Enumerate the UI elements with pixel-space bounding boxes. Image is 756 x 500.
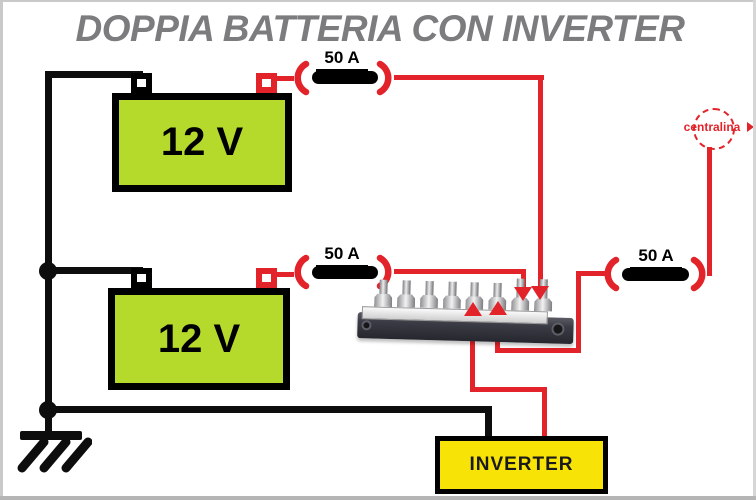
arrow-down-icon [514,287,532,301]
wire-inverter-positive-drop [542,387,547,438]
inverter-label: INVERTER [469,454,573,476]
wire-negative-bus-left [45,71,52,413]
fuse2-left-arc-icon [288,254,310,290]
fuse1-right-arc-icon [376,60,398,96]
fuse3-right-arc-icon [690,256,712,292]
inverter-box: INVERTER [435,436,608,494]
earth-ground-icon [8,426,92,478]
busbar-terminal [420,281,439,308]
battery-1-label: 12 V [161,120,243,165]
fuse1-left-arc-icon [288,60,310,96]
battery-2-label: 12 V [158,317,240,362]
wire-battery1-negative-top [45,71,143,78]
wire-inverter-negative-drop [485,406,492,439]
battery2-negative-terminal [131,268,152,288]
fuse1-label: 50 A [316,48,368,72]
junction-dot [39,401,57,419]
wire-fuse1-to-busbar-horizontal [394,75,544,80]
arrow-up-icon [464,302,482,316]
arrow-down-icon [531,286,549,300]
page-title: DOPPIA BATTERIA CON INVERTER [30,8,730,50]
image-edge [0,0,3,500]
wire-battery2-negative-branch [45,267,143,274]
battery-1: 12 V [112,93,292,192]
wire-to-inverter-horizontal [470,387,547,392]
battery-2: 12 V [108,288,290,390]
wire-fuse1-to-busbar-vertical [538,75,543,288]
fuse3-left-arc-icon [598,256,620,292]
busbar-terminal [443,281,462,308]
wiring-diagram: DOPPIA BATTERIA CON INVERTER 12 V 12 V 5… [0,0,756,500]
arrow-up-icon [489,301,507,315]
fuse2-label: 50 A [316,244,368,268]
busbar-terminal [374,280,393,307]
image-edge [0,496,756,500]
busbar-terminal [397,280,416,307]
wire-ground-to-inverter [45,406,492,413]
junction-dot [39,262,57,280]
battery1-negative-terminal [131,73,152,93]
fuse3-label: 50 A [630,246,682,270]
image-edge [0,0,756,2]
centralina-label: centralina [675,120,749,134]
fuse3-body [622,268,689,281]
fuse1-body [312,71,378,84]
battery2-positive-terminal [256,268,277,288]
